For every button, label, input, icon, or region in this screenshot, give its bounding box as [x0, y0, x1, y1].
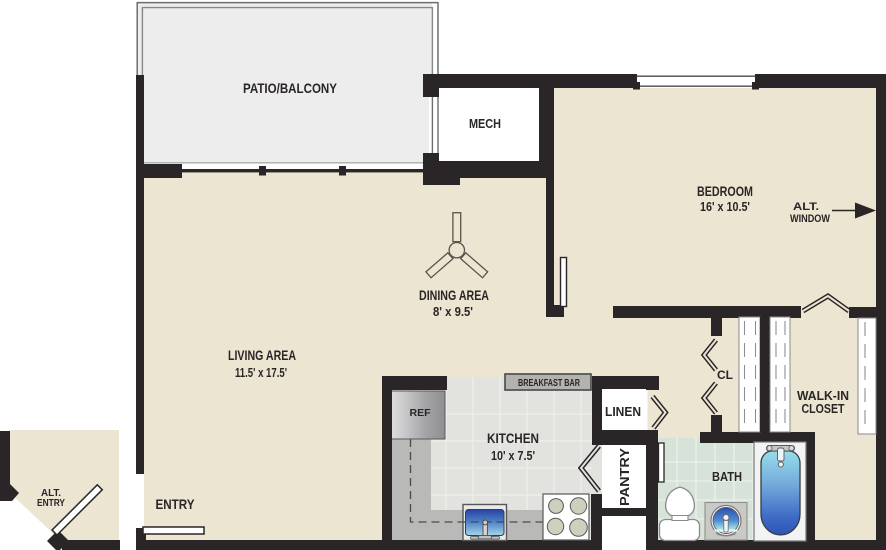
svg-text:PANTRY: PANTRY: [617, 448, 632, 506]
svg-text:CLOSET: CLOSET: [802, 401, 845, 416]
svg-text:8' x 9.5': 8' x 9.5': [433, 304, 473, 319]
svg-text:CL: CL: [717, 368, 733, 382]
svg-text:ENTRY: ENTRY: [37, 497, 65, 509]
svg-text:LIVING AREA: LIVING AREA: [228, 347, 296, 363]
svg-text:KITCHEN: KITCHEN: [487, 430, 539, 446]
svg-text:ALT.: ALT.: [793, 201, 819, 213]
svg-text:DINING AREA: DINING AREA: [419, 287, 489, 303]
svg-text:LINEN: LINEN: [605, 404, 641, 419]
svg-text:BREAKFAST BAR: BREAKFAST BAR: [518, 377, 580, 389]
svg-text:MECH: MECH: [469, 116, 501, 131]
svg-text:11.5' x 17.5': 11.5' x 17.5': [235, 365, 287, 380]
svg-text:16' x 10.5': 16' x 10.5': [700, 199, 750, 214]
svg-text:WINDOW: WINDOW: [790, 213, 831, 225]
svg-text:BEDROOM: BEDROOM: [697, 183, 753, 199]
svg-text:PATIO/BALCONY: PATIO/BALCONY: [243, 80, 338, 96]
svg-text:10' x 7.5': 10' x 7.5': [491, 448, 535, 463]
svg-text:ENTRY: ENTRY: [156, 496, 196, 512]
svg-text:BATH: BATH: [712, 469, 742, 484]
svg-text:REF: REF: [410, 407, 432, 419]
